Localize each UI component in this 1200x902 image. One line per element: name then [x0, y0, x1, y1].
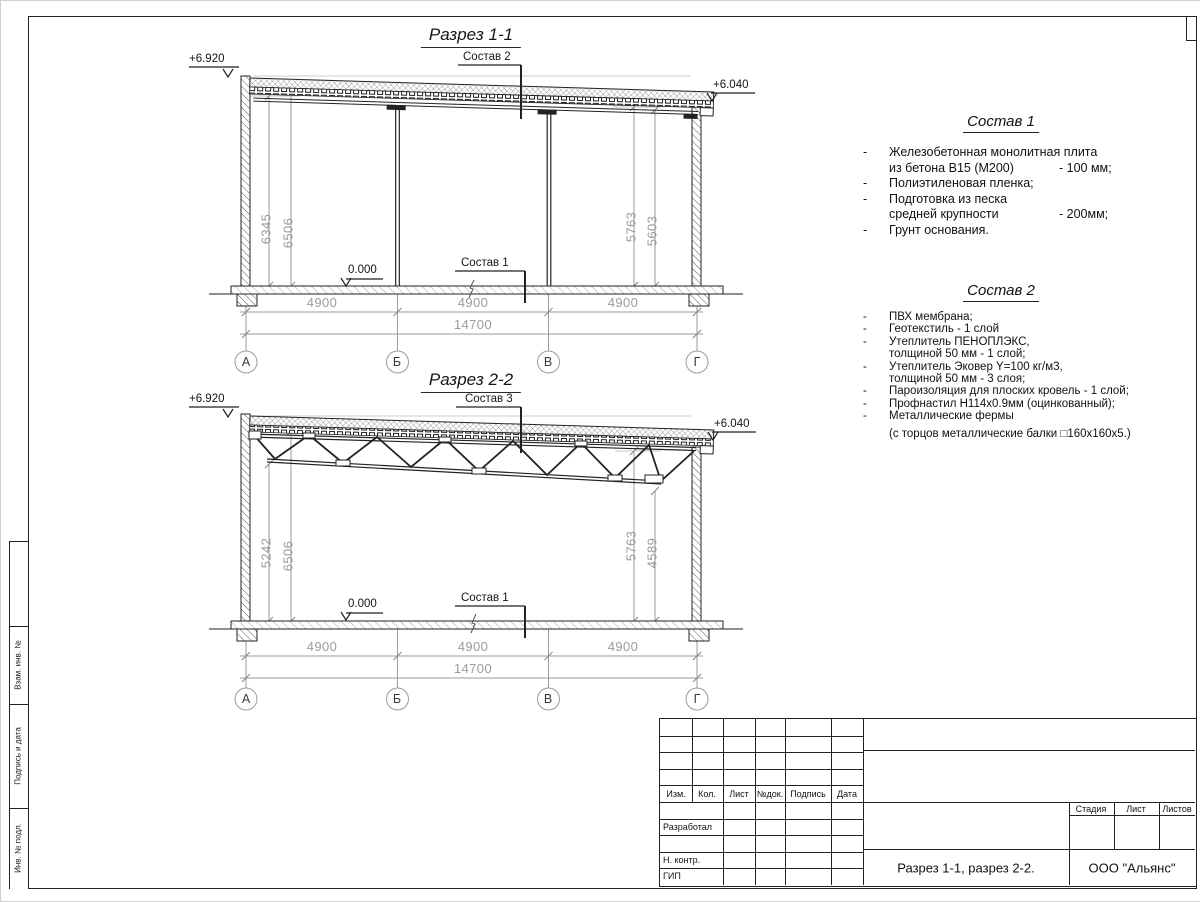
tb-col-sheet: Лист	[1126, 804, 1146, 814]
tb-col-ndok: №док.	[757, 789, 783, 799]
tb-col-sheets: Листов	[1162, 804, 1191, 814]
title-block: Изм. Кол. Лист №док. Подпись Дата Разраб…	[659, 718, 1197, 887]
tb-row-nkontr: Н. контр.	[663, 855, 700, 865]
tb-company: ООО "Альянс"	[1089, 861, 1176, 876]
tb-col-list: Лист	[729, 789, 749, 799]
tb-col-data: Дата	[837, 789, 857, 799]
frame-corner-box	[1186, 16, 1197, 41]
margin-label-vzam: Взам. инв. №	[14, 640, 23, 690]
margin-label-podpis-data: Подпись и дата	[14, 727, 23, 785]
tb-doc-title: Разрез 1-1, разрез 2-2.	[897, 861, 1034, 876]
margin-label-inv: Инв. № подл.	[14, 823, 23, 873]
drawing-sheet: Разрез 1-1 +6.920 +6.040 0.000 Состав 2 …	[0, 0, 1200, 902]
tb-row-gip: ГИП	[663, 871, 681, 881]
tb-col-stadia: Стадия	[1076, 804, 1107, 814]
tb-col-podpis: Подпись	[790, 789, 826, 799]
tb-row-razrabotal: Разработал	[663, 822, 712, 832]
tb-col-kol: Кол.	[698, 789, 716, 799]
tb-col-izm: Изм.	[666, 789, 685, 799]
